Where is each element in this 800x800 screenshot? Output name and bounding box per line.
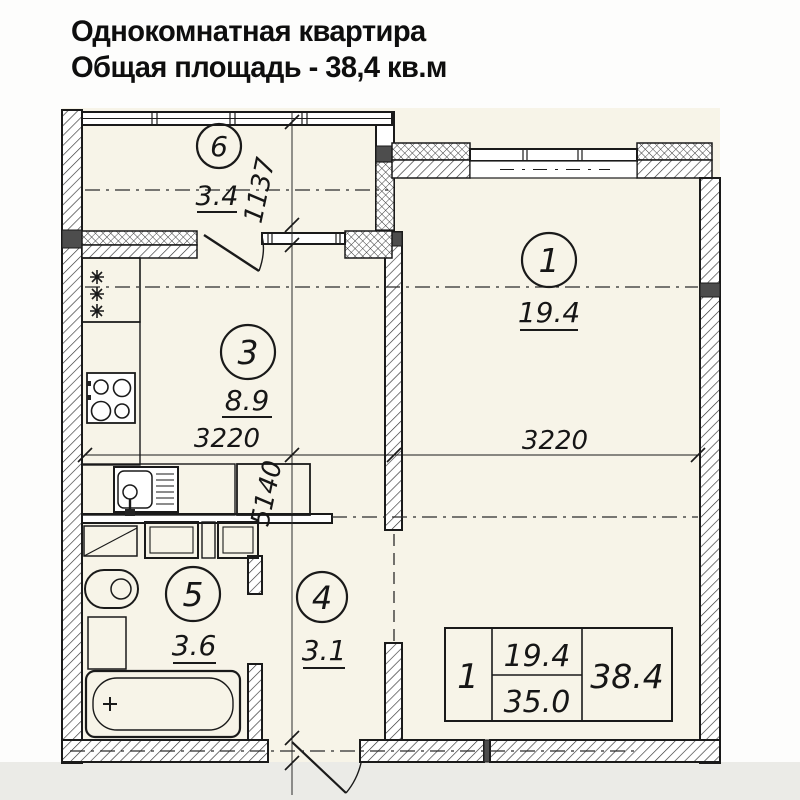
- table-total-area: 38.4: [590, 657, 663, 696]
- wall-bath-hall-lower: [248, 664, 262, 742]
- wall-joint-left: [62, 230, 82, 248]
- room-number-living: 1: [539, 241, 560, 280]
- room-number-bathroom: 5: [183, 575, 204, 614]
- living-window-sill: [470, 161, 637, 178]
- wall-top-pier-right: [637, 160, 712, 178]
- dim-living-width: 3220: [522, 426, 588, 456]
- wall-partition-living: [385, 232, 402, 530]
- sink-icon: [114, 467, 178, 516]
- floor-plan: 3220 3220 1137 5140 6 3.4 1 19.4 3 8.9: [0, 0, 800, 800]
- wall-balcony-bottom-insulation: [82, 231, 197, 245]
- kitchen-balcony-window: [262, 233, 345, 244]
- wall-right: [700, 178, 720, 763]
- vent-asterisk-icon: [90, 270, 104, 318]
- room-area-hallway: 3.1: [302, 634, 347, 667]
- room-area-balcony: 3.4: [196, 181, 239, 212]
- wall-joint-right: [700, 283, 720, 297]
- room-number-balcony: 6: [210, 130, 228, 163]
- room-number-kitchen: 3: [238, 333, 259, 372]
- wall-partition-living-stub: [385, 643, 402, 742]
- wall-balcony-bottom-right: [345, 231, 392, 258]
- room-area-living: 19.4: [518, 296, 580, 329]
- footer-band: [0, 762, 800, 800]
- table-area-without-balcony: 35.0: [504, 685, 571, 720]
- wall-top-pier-left: [392, 160, 470, 178]
- room-number-hallway: 4: [312, 579, 332, 617]
- screenshot: Однокомнатная квартира Общая площадь - 3…: [0, 0, 800, 800]
- wall-top-pier-left-insulation: [392, 143, 470, 160]
- room-area-kitchen: 8.9: [225, 384, 270, 417]
- table-living-area: 19.4: [504, 639, 571, 674]
- living-window: [470, 149, 637, 161]
- wall-left: [62, 110, 82, 763]
- room-area-bathroom: 3.6: [172, 629, 217, 662]
- wall-bath-hall-upper: [248, 556, 262, 594]
- wall-top-pier-right-insulation: [637, 143, 712, 160]
- summary-table: 1 19.4 35.0 38.4: [445, 628, 672, 721]
- dim-kitchen-width: 3220: [194, 424, 260, 454]
- table-rooms-count: 1: [457, 657, 479, 697]
- wall-balcony-bottom: [82, 245, 197, 258]
- stove-icon: [87, 373, 135, 423]
